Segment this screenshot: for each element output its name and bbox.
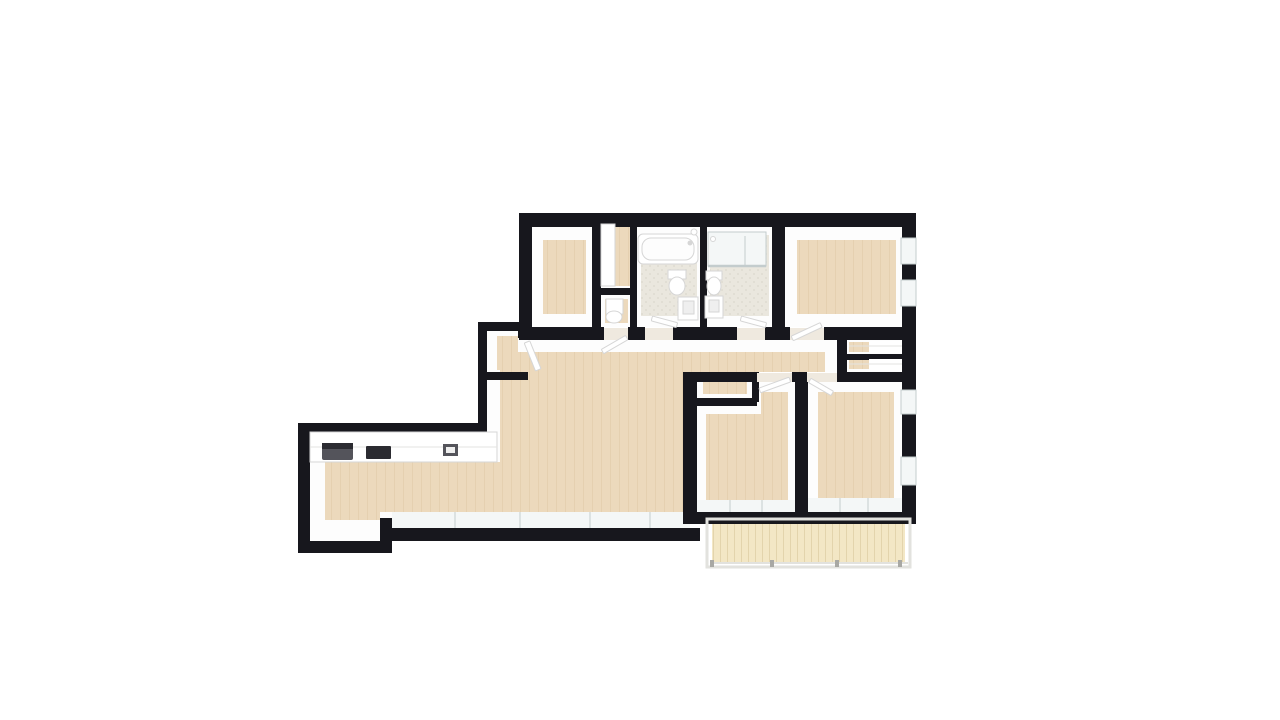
- shower-head: [691, 229, 697, 235]
- floor-bedroom-top-right: [797, 240, 896, 314]
- closet-shelf-upper: [869, 341, 902, 353]
- bedroomB-window-1: [901, 238, 916, 264]
- storage-shelf: [601, 224, 615, 286]
- bedroomC-south-windows: [697, 500, 795, 512]
- floor-bedroom-top-left: [543, 240, 586, 314]
- floor-bedroom-bottom-right: [818, 392, 894, 498]
- cooktop: [366, 446, 391, 459]
- bedroomD-south-windows: [808, 498, 902, 512]
- bedroomB-window-2: [901, 280, 916, 306]
- floor-living: [500, 372, 690, 505]
- floor-balcony: [712, 524, 905, 564]
- wall-bathroom-divider: [700, 227, 707, 340]
- floor-niche: [703, 382, 747, 394]
- wall-west: [298, 423, 310, 553]
- wall-north: [519, 213, 916, 227]
- floor-storage-strip: [615, 226, 630, 286]
- floor-kitchen: [325, 462, 500, 505]
- living-south-windows: [392, 512, 690, 528]
- wall-living-south: [380, 528, 700, 541]
- shower: [708, 232, 766, 266]
- floor-nook: [497, 336, 518, 370]
- floor-living-lower-left: [325, 505, 380, 520]
- closet-shelf-lower: [869, 359, 902, 371]
- bedroomD-window-2: [901, 457, 916, 485]
- floor-hallway: [500, 352, 825, 372]
- bedroomD-window-1: [901, 390, 916, 414]
- floorplan-canvas: [0, 0, 1280, 720]
- floorplan-render: [0, 0, 1280, 720]
